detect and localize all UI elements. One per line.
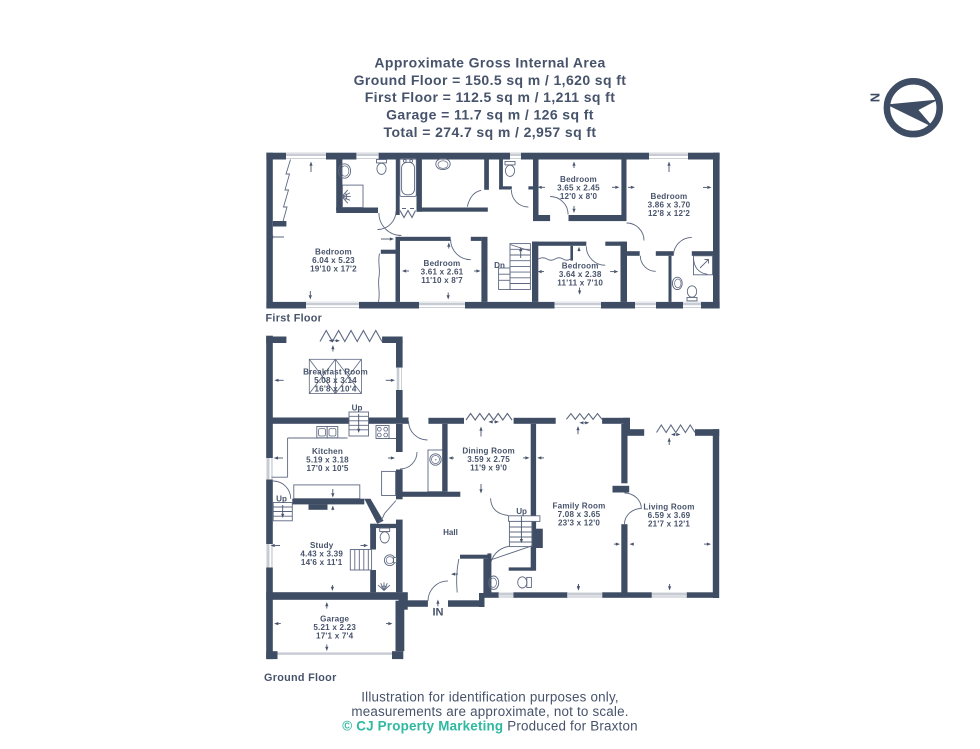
svg-text:N: N [868,93,883,102]
svg-text:Dining Room3.59 x 2.7511'9 x 9: Dining Room3.59 x 2.7511'9 x 9'0 [462,447,515,473]
svg-text:Up: Up [516,507,527,516]
svg-text:Approximate Gross Internal Are: Approximate Gross Internal Area [374,54,605,70]
svg-text:Up: Up [276,495,287,504]
svg-text:Dn: Dn [494,261,505,270]
svg-text:IN: IN [433,607,444,619]
svg-text:Total = 274.7 sq m / 2,957 sq: Total = 274.7 sq m / 2,957 sq ft [384,124,597,140]
svg-text:Bedroom3.86 x 3.7012'8 x 12'2: Bedroom3.86 x 3.7012'8 x 12'2 [648,192,691,218]
svg-text:© CJ Property Marketing Produc: © CJ Property Marketing Produced for Bra… [342,719,638,734]
svg-text:Living Room6.59 x 3.6921'7 x 1: Living Room6.59 x 3.6921'7 x 12'1 [643,503,694,529]
svg-text:Up: Up [352,404,363,413]
svg-text:Bedroom3.61 x 2.6111'10 x 8'7: Bedroom3.61 x 2.6111'10 x 8'7 [421,259,464,285]
svg-text:Garage5.21 x 2.2317'1 x 7'4: Garage5.21 x 2.2317'1 x 7'4 [313,615,356,641]
svg-text:Illustration for identificatio: Illustration for identification purposes… [361,690,619,705]
svg-text:Bedroom6.04 x 5.2319'10 x 17'2: Bedroom6.04 x 5.2319'10 x 17'2 [310,248,357,274]
svg-text:First Floor = 112.5 sq m / 1,2: First Floor = 112.5 sq m / 1,211 sq ft [365,89,616,105]
svg-text:Hall: Hall [443,528,458,537]
svg-text:Bedroom3.64 x 2.3811'11 x 7'10: Bedroom3.64 x 2.3811'11 x 7'10 [557,262,603,288]
svg-text:Family Room7.08 x 3.6523'3 x 1: Family Room7.08 x 3.6523'3 x 12'0 [552,502,605,528]
svg-text:measurements are approximate,: measurements are approximate, not to sca… [351,704,628,719]
svg-text:First Floor: First Floor [266,312,323,324]
svg-text:Ground Floor = 150.5 sq m / 1,: Ground Floor = 150.5 sq m / 1,620 sq ft [354,72,627,88]
svg-text:Study4.43 x 3.3914'6 x 11'1: Study4.43 x 3.3914'6 x 11'1 [300,541,343,567]
svg-text:Garage = 11.7 sq m / 126 sq ft: Garage = 11.7 sq m / 126 sq ft [386,106,594,122]
svg-text:Ground Floor: Ground Floor [264,672,337,684]
svg-text:Kitchen5.19 x 3.1817'0 x 10'5: Kitchen5.19 x 3.1817'0 x 10'5 [306,447,349,473]
svg-text:Bedroom3.65 x 2.4512'0 x 8'0: Bedroom3.65 x 2.4512'0 x 8'0 [557,175,600,201]
